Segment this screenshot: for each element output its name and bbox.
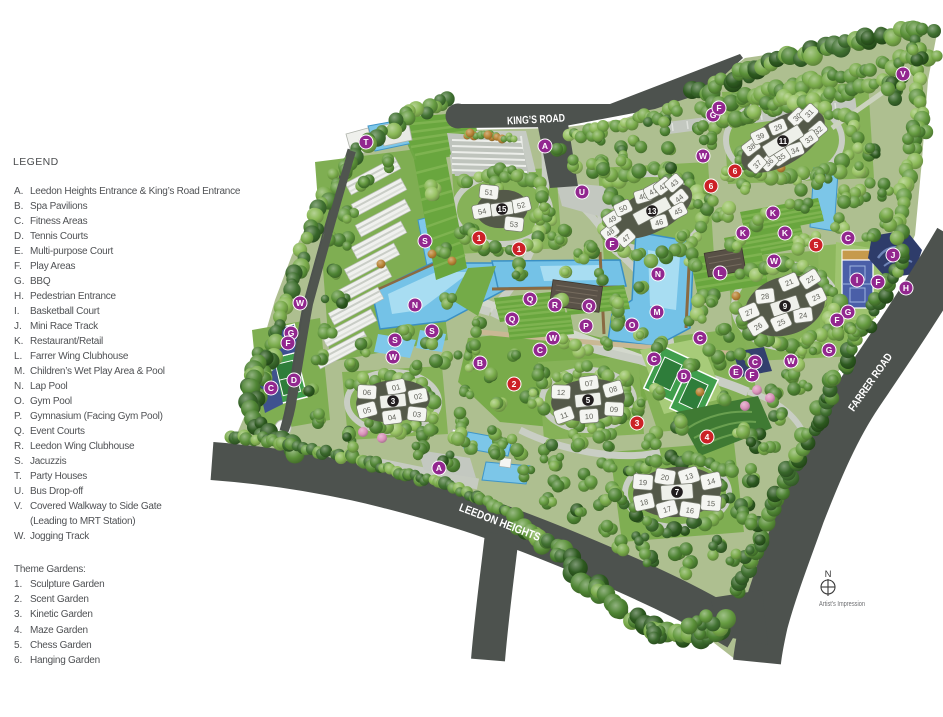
svg-text:Q: Q — [509, 314, 516, 324]
svg-text:E: E — [733, 367, 739, 377]
svg-text:H: H — [903, 283, 909, 293]
svg-text:4: 4 — [705, 432, 710, 442]
svg-text:13: 13 — [648, 207, 657, 216]
svg-text:S: S — [429, 326, 435, 336]
svg-text:28: 28 — [760, 292, 769, 302]
svg-text:T: T — [363, 137, 369, 147]
svg-text:19: 19 — [638, 478, 647, 488]
svg-text:5: 5 — [814, 240, 819, 250]
svg-text:53: 53 — [509, 220, 518, 230]
svg-text:A: A — [542, 141, 548, 151]
svg-text:1: 1 — [477, 233, 482, 243]
svg-text:W: W — [770, 256, 779, 266]
svg-text:C: C — [537, 345, 543, 355]
svg-text:16: 16 — [685, 505, 695, 515]
svg-text:1: 1 — [517, 244, 522, 254]
svg-text:C: C — [697, 333, 703, 343]
svg-text:K: K — [740, 228, 747, 238]
svg-text:J: J — [891, 250, 896, 260]
svg-text:N: N — [655, 269, 661, 279]
svg-text:10: 10 — [585, 412, 594, 422]
svg-text:S: S — [422, 236, 428, 246]
svg-text:04: 04 — [387, 412, 397, 422]
svg-text:02: 02 — [413, 391, 423, 401]
svg-text:Artist’s Impression: Artist’s Impression — [819, 599, 865, 608]
svg-text:W: W — [296, 298, 305, 308]
svg-text:09: 09 — [610, 405, 619, 414]
svg-text:W: W — [389, 352, 398, 362]
svg-text:07: 07 — [584, 378, 594, 388]
svg-text:D: D — [291, 375, 297, 385]
svg-text:K: K — [782, 228, 789, 238]
svg-text:51: 51 — [484, 188, 493, 198]
svg-text:Q: Q — [586, 301, 593, 311]
svg-text:C: C — [268, 383, 274, 393]
svg-text:3: 3 — [635, 418, 640, 428]
svg-text:12: 12 — [557, 388, 566, 397]
svg-text:W: W — [787, 356, 796, 366]
svg-text:11: 11 — [779, 137, 788, 146]
svg-text:7: 7 — [675, 488, 680, 497]
svg-text:B: B — [477, 358, 483, 368]
svg-text:C: C — [845, 233, 851, 243]
svg-text:Q: Q — [527, 294, 534, 304]
svg-text:K: K — [770, 208, 777, 218]
svg-text:15: 15 — [706, 499, 715, 509]
svg-text:6: 6 — [733, 166, 738, 176]
svg-text:03: 03 — [412, 410, 421, 420]
svg-text:15: 15 — [498, 205, 507, 214]
svg-text:R: R — [552, 300, 558, 310]
svg-text:A: A — [436, 463, 442, 473]
svg-text:F: F — [609, 239, 614, 249]
svg-text:F: F — [875, 277, 880, 287]
svg-text:C: C — [651, 354, 657, 364]
svg-text:54: 54 — [477, 206, 487, 216]
svg-text:P: P — [583, 321, 589, 331]
svg-text:W: W — [699, 151, 708, 161]
svg-text:F: F — [749, 370, 754, 380]
svg-text:24: 24 — [798, 311, 807, 321]
svg-text:2: 2 — [512, 379, 517, 389]
svg-text:06: 06 — [363, 388, 372, 397]
svg-text:F: F — [834, 315, 839, 325]
svg-text:C: C — [752, 357, 758, 367]
svg-text:L: L — [717, 268, 722, 278]
svg-text:O: O — [629, 320, 636, 330]
svg-text:5: 5 — [586, 396, 591, 405]
svg-text:F: F — [285, 338, 290, 348]
svg-text:6: 6 — [709, 181, 714, 191]
svg-text:D: D — [681, 371, 687, 381]
svg-text:G: G — [826, 345, 833, 355]
svg-text:9: 9 — [783, 302, 788, 311]
svg-text:F: F — [716, 103, 721, 113]
svg-text:V: V — [900, 69, 906, 79]
svg-text:N: N — [412, 300, 418, 310]
svg-text:U: U — [579, 187, 585, 197]
svg-text:G: G — [845, 307, 852, 317]
svg-text:S: S — [392, 335, 398, 345]
svg-text:W: W — [549, 333, 558, 343]
svg-text:N: N — [825, 569, 832, 580]
svg-text:3: 3 — [391, 397, 396, 406]
svg-text:M: M — [653, 307, 660, 317]
svg-text:I: I — [856, 275, 858, 285]
svg-text:20: 20 — [660, 472, 670, 482]
